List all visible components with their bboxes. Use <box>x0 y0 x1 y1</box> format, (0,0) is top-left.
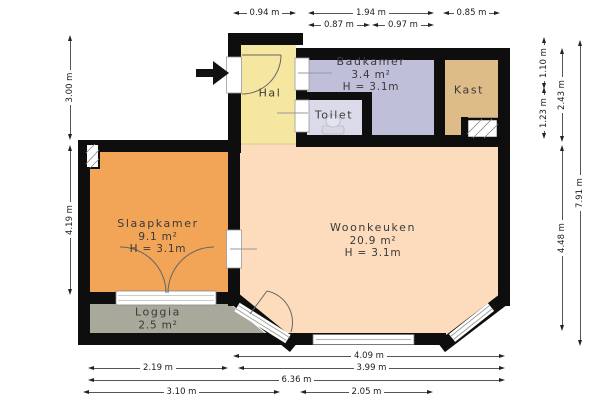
dimension-right-total: 7.91 m <box>574 40 586 346</box>
dimension-right-middle-lower: 4.48 m <box>556 145 568 331</box>
room-name: Woonkeuken <box>330 222 416 235</box>
room-area: 20.9 m² <box>330 235 416 247</box>
wall <box>228 140 240 306</box>
room-area: 3.4 m² <box>337 69 406 81</box>
dimension-value: 1.10 m <box>538 45 550 81</box>
dimension-bottom-row1: 4.09 m <box>233 350 505 362</box>
dimension-value: 1.23 m <box>538 95 550 131</box>
room-name: Badkamer <box>337 56 406 69</box>
room-ceiling-height: H = 3.1m <box>117 243 198 255</box>
wall <box>434 48 445 147</box>
dimension-value: 0.94 m <box>247 7 283 19</box>
badkamer-label: Badkamer 3.4 m² H = 3.1m <box>337 56 406 94</box>
entrance-arrow-icon <box>196 61 229 85</box>
dimension-value: 2.43 m <box>556 77 568 113</box>
dimension-bottom-total: 6.36 m <box>88 374 505 386</box>
dimension-bottom-row2-left: 2.19 m <box>88 362 228 374</box>
loggia-label: Loggia 2.5 m² <box>135 306 181 331</box>
room-name: Slaapkamer <box>117 218 198 231</box>
room-name: Toilet <box>315 110 353 123</box>
dimension-value: 4.09 m <box>351 350 387 362</box>
dimension-value: 7.91 m <box>574 175 586 211</box>
dimension-value: 4.48 m <box>556 220 568 256</box>
toilet-label: Toilet <box>315 110 353 123</box>
room-ceiling-height: H = 3.1m <box>337 81 406 93</box>
dimension-value: 2.05 m <box>349 386 385 398</box>
dimension-top-sub2: 0.97 m <box>372 19 434 31</box>
room-name: Kast <box>454 85 484 98</box>
toilet-door-opening <box>295 100 309 132</box>
dimension-value: 0.97 m <box>385 19 421 31</box>
room-name: Loggia <box>135 306 181 319</box>
dimension-top-badkamer: 1.94 m <box>308 7 434 19</box>
badkamer-door-opening <box>295 58 309 90</box>
dimension-value: 0.85 m <box>454 7 490 19</box>
room-area: 2.5 m² <box>135 319 181 331</box>
dimension-right-inner-lower: 1.23 m <box>538 91 550 139</box>
dimension-top-sub1: 0.87 m <box>308 19 370 31</box>
floor-plan: Hal Badkamer 3.4 m² H = 3.1m Toilet Kast… <box>0 0 600 400</box>
dimension-value: 2.19 m <box>140 362 176 374</box>
dimension-value: 3.99 m <box>354 362 390 374</box>
kast-label: Kast <box>454 85 484 98</box>
room-area: 9.1 m² <box>117 231 198 243</box>
entrance-door-opening <box>227 57 242 93</box>
hal-label: Hal <box>259 88 282 101</box>
wall <box>78 333 299 345</box>
dimension-right-middle-upper: 2.43 m <box>556 48 568 142</box>
dimension-value: 0.87 m <box>321 19 357 31</box>
wall <box>498 48 510 306</box>
double-door-sill <box>116 291 216 305</box>
dimension-top-kast: 0.85 m <box>443 7 500 19</box>
dimension-right-inner-upper: 1.10 m <box>538 48 550 89</box>
shaft-box <box>86 144 99 168</box>
room-name: Hal <box>259 88 282 101</box>
woonkeuken-label: Woonkeuken 20.9 m² H = 3.1m <box>330 222 416 260</box>
dimension-value: 4.19 m <box>64 202 76 238</box>
floor-plan-drawing <box>0 0 600 400</box>
wall <box>78 140 240 152</box>
dimension-bottom-row4-right: 2.05 m <box>300 386 433 398</box>
dimension-bottom-row4-left: 3.10 m <box>83 386 280 398</box>
room-ceiling-height: H = 3.1m <box>330 247 416 259</box>
dimension-value: 3.00 m <box>64 70 76 106</box>
wall <box>78 140 90 345</box>
slaapkamer-label: Slaapkamer 9.1 m² H = 3.1m <box>117 218 198 256</box>
dimension-top-hal: 0.94 m <box>233 7 296 19</box>
dimension-value: 1.94 m <box>353 7 389 19</box>
dimension-left-lower: 4.19 m <box>64 145 76 295</box>
dimension-value: 3.10 m <box>164 386 200 398</box>
dimension-bottom-row2-right: 3.99 m <box>238 362 505 374</box>
dimension-left-upper: 3.00 m <box>64 35 76 140</box>
dimension-value: 6.36 m <box>279 374 315 386</box>
